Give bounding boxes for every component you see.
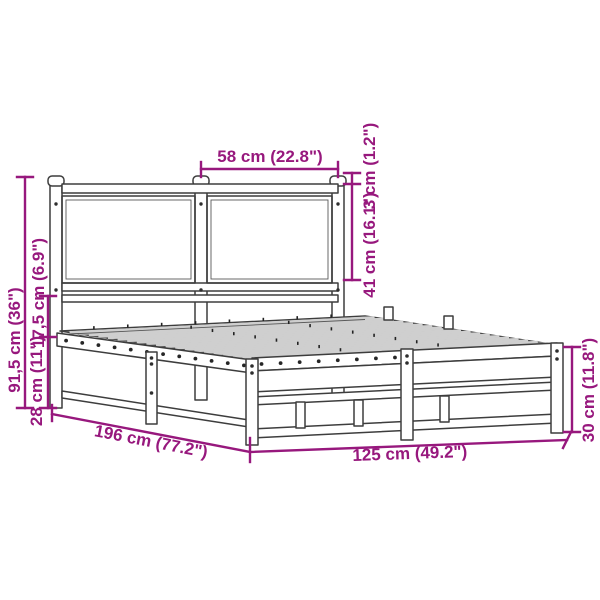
headboard-left-panel [62, 196, 195, 283]
dimension-label-total-height: 91,5 cm (36") [5, 287, 24, 392]
stretcher-connector [440, 396, 449, 422]
dimension-headboard-panel-width: 58 cm (22.8") [201, 147, 338, 177]
dimension-label-rail-gap-height: 17,5 cm (6.9") [29, 238, 48, 348]
dimension-label-frame-length: 196 cm (77.2") [93, 421, 209, 462]
headboard-left-panel-inset [66, 200, 191, 279]
stretcher-connector [354, 400, 363, 426]
diagram-svg: 58 cm (22.8") 3 cm (1.2") 41 cm (16.1") … [0, 0, 600, 600]
front-right-corner-post [551, 343, 563, 433]
headboard-right-panel-inset [211, 200, 328, 279]
dimension-label-headboard-panel-width: 58 cm (22.8") [217, 147, 322, 166]
headboard-lower-rail [62, 295, 338, 302]
dimension-label-headboard-panel-height: 41 cm (16.1") [360, 192, 379, 297]
dimension-side-frame-height: 30 cm (11.8") [564, 338, 598, 442]
dimension-label-frame-width: 125 cm (49.2") [352, 442, 467, 465]
dimension-label-side-frame-height: 30 cm (11.8") [579, 338, 598, 442]
headboard-right-panel [207, 196, 332, 283]
headboard-top-rail [62, 184, 338, 193]
slat-bracket [444, 316, 453, 329]
bed-frame-dimension-diagram: 58 cm (22.8") 3 cm (1.2") 41 cm (16.1") … [0, 0, 600, 600]
stretcher-connector [296, 402, 305, 428]
dimension-label-base-height: 28 cm (11") [27, 336, 46, 426]
dimension-cap-and-panel-height: 3 cm (1.2") 41 cm (16.1") [344, 123, 379, 298]
slat-bracket [384, 307, 393, 320]
